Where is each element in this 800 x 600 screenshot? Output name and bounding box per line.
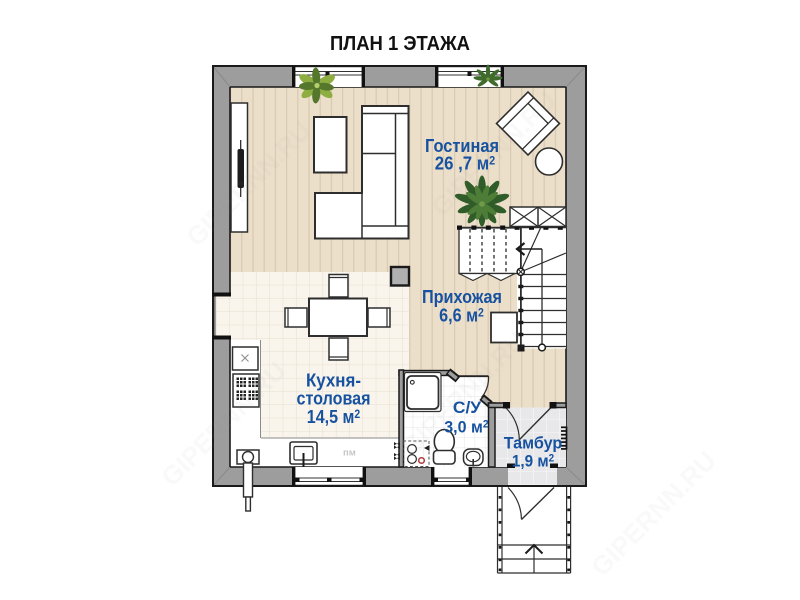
svg-text:Тамбур: Тамбур — [504, 434, 563, 453]
svg-text:ПЛАН 1 ЭТАЖА: ПЛАН 1 ЭТАЖА — [330, 32, 470, 55]
svg-text:6,6 м2: 6,6 м2 — [439, 305, 484, 326]
svg-text:14,5 м2: 14,5 м2 — [307, 406, 361, 427]
svg-text:1,9 м2: 1,9 м2 — [512, 452, 554, 471]
svg-text:пм: пм — [343, 448, 356, 459]
